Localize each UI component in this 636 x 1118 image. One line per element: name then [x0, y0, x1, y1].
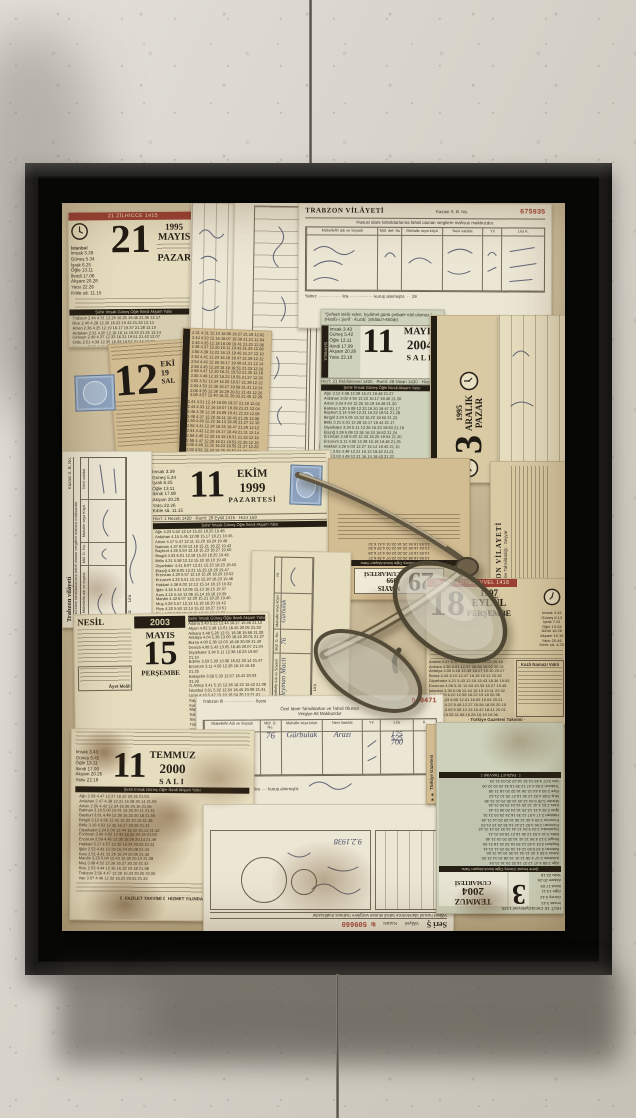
month: TEMMUZ	[439, 897, 507, 906]
weekday: PERŞEMBE	[467, 609, 511, 618]
revenue-type-handwritten: Arazi	[322, 731, 362, 774]
cell	[89, 500, 126, 542]
village-handwritten: Gürbulak	[280, 732, 322, 775]
prayer-times: İmsak 4.43 Güneş 6.13 İşrak 7.01 Öğle 13…	[540, 611, 564, 648]
kaza-no-label: Kazası S. B. No.	[436, 209, 468, 215]
frame-soft-shadow	[150, 985, 620, 1045]
vilayet-label: Vilâyeti	[405, 921, 419, 926]
wall-seam-upper	[309, 0, 312, 165]
stamp-oval	[82, 381, 108, 405]
col-header: Müf. D. No.	[81, 543, 88, 566]
year: 1999	[364, 576, 400, 584]
col-header: Lira	[380, 719, 413, 731]
col-header: Yıl	[482, 229, 501, 237]
kaza-label: Kazası	[383, 921, 396, 926]
year: 2000	[149, 761, 195, 777]
cell	[482, 236, 501, 291]
prayer-times: İmsak 3.39 Güneş 5.34 İşrak 6.25 Öğle 13…	[71, 251, 109, 296]
weekday: CUMARTESİ	[364, 570, 400, 576]
cell	[501, 236, 544, 291]
calendar-page-3-temmuz-2004-upside-down: Hicrî: 15 Cemâziyelevvel 1425 İmsak 3.43…	[436, 722, 564, 914]
col-header: Mahalle veya köyü	[280, 720, 322, 732]
hijri-line: Hicrî: 15 Cemâziyelevvel 1425	[439, 906, 561, 911]
serial-number: № 509660	[342, 919, 376, 927]
village-handwritten: Gürbulak	[281, 594, 313, 631]
handwriting-scribble	[230, 839, 370, 909]
picture-frame: 21 ZİLHİCCE 1415 İstanbul İmsak 3.39 Gün…	[25, 163, 612, 975]
clock-icon	[71, 222, 89, 240]
day-number: 12	[113, 360, 160, 400]
cell	[442, 236, 483, 291]
kaza-no-label: Kazası S. B. No.	[67, 457, 72, 489]
day-number: 18	[429, 588, 465, 648]
clock-icon	[459, 371, 479, 391]
city-times-table: Ağrı 2.58 4.47 12.37 16.32 20.16 21.54 A…	[439, 778, 561, 866]
cell	[306, 235, 378, 290]
day-number: 11	[112, 750, 146, 786]
year: 2004	[439, 885, 507, 897]
cell	[401, 236, 442, 291]
handwriting-scribble	[190, 204, 238, 335]
weekday: PAZARTESİ	[228, 495, 276, 504]
city-ilce-line: Trabzon İli ····················· İlçesi	[203, 698, 267, 706]
year: 1995	[153, 221, 196, 231]
notes-lines	[75, 298, 192, 309]
info-box-title: Kazâ Namazı Vakti	[518, 662, 562, 667]
col-header: Müf. D. No.	[259, 720, 280, 732]
day-number: 11	[189, 468, 226, 513]
year-box: 2003	[135, 616, 186, 629]
seri-label: Seri Ş	[427, 920, 447, 929]
weekday: SALI	[149, 777, 195, 786]
ayet-meali-label: Âyet Meâli	[80, 684, 131, 690]
receipt-title: Trabzon vilâyeti	[66, 577, 73, 622]
month: EKİM	[228, 467, 276, 480]
cell	[89, 458, 126, 500]
day-number: 11	[360, 326, 396, 378]
table-header: Şehir İmsak Güneş Öğle İkindi Akşam Yats…	[332, 560, 466, 566]
info-lines	[77, 629, 132, 664]
small-print	[430, 650, 563, 659]
year: 1999	[228, 479, 277, 496]
prayer-times: İmsak 3.43 Güneş 5.42 Öğle 13.11 İkindi …	[75, 749, 109, 785]
month: EYLÜL	[467, 598, 511, 609]
number-handwritten: 76	[281, 630, 312, 655]
receipt-table: Mükellefin adı ve Soyadı Müf. def. No Ma…	[305, 227, 545, 293]
cell	[282, 558, 314, 595]
signature-scribble	[305, 777, 355, 789]
col-header: Yıl	[361, 719, 380, 731]
small-print	[157, 243, 192, 251]
prayer-times: İmsak 3.43 Güneş 5.42 Öğle 13.11 İkindi …	[328, 325, 360, 377]
month: MAYIS	[364, 584, 400, 592]
collage-canvas: 21 ZİLHİCCE 1415 İstanbul İmsak 3.39 Gün…	[62, 203, 565, 931]
cell	[377, 236, 401, 291]
weekday: PAZAR	[474, 395, 484, 431]
sepia-prayer-table: 2.41 4.31 12.14 16.05 19.37 21.19 12.02 …	[178, 327, 273, 462]
receipt-subtitle: Hususi idare tahsildarlarınca tahsil olu…	[73, 457, 79, 622]
day-number: 15	[135, 640, 186, 670]
serial-number: 675935	[520, 208, 545, 216]
photograph: 21 ZİLHİCCE 1415 İstanbul İmsak 3.39 Gün…	[0, 0, 636, 1118]
col-header: Nevi Varidat	[322, 720, 362, 732]
weekday: CUMARTESİ	[439, 879, 507, 885]
serial-number: 910471	[411, 697, 436, 705]
numeric-table: 2.41 4.31 12.14 16.05 19.37 21.19 12.02 …	[188, 329, 271, 403]
info-box-text	[518, 667, 562, 705]
receipt-trabzon-left-rotated: Trabzon vilâyeti Kazası S. B. No. Hususi…	[62, 451, 152, 628]
receipt-509660-upside-down: Seri Ş Vilâyeti Kazası № 509660 Vilâyet …	[203, 804, 454, 931]
stamp-oval	[296, 472, 317, 498]
small-print	[76, 731, 250, 749]
calendar-page-21-mayis-1995: 21 ZİLHİCCE 1415 İstanbul İmsak 3.39 Gün…	[67, 210, 199, 347]
cell	[362, 731, 381, 774]
line2: Vergiye Ait Makbuzdur	[197, 711, 443, 718]
receipt-title: TRABZON VİLÂYETİ	[305, 206, 384, 214]
month: TEMMUZ	[150, 750, 196, 761]
revenue-stamp	[74, 374, 115, 411]
day-number: 3	[453, 435, 485, 454]
small-print	[338, 513, 460, 539]
prayer-times: İmsak 3.39 Güneş 5.34 İşrak 6.25 Öğle 13…	[152, 469, 187, 514]
year: 1995	[455, 395, 464, 431]
day-number: 3	[509, 872, 529, 906]
amount-line: Yalnız ················ lira ···········…	[299, 293, 551, 300]
strip-text: ✶✶ Türkiye Gazetesi	[427, 725, 436, 803]
receipt-subtitle: Hususi idare tahsildarlarına tahsil olun…	[305, 217, 545, 226]
postage-stamp	[289, 464, 322, 505]
receipt-subtitle: Vilâyet hususî idarelerince tahsil oluna…	[210, 912, 447, 919]
wall-seam-lower	[336, 974, 339, 1118]
lira-label: Lira	[312, 684, 318, 691]
kurus-line: lira ···· kuruş alınmıştır.	[254, 786, 299, 792]
number-handwritten: 76	[260, 732, 281, 775]
glasses-bridge	[394, 650, 399, 671]
cell	[89, 543, 126, 566]
frame-cavity: 21 ZİLHİCCE 1415 İstanbul İmsak 3.39 Gün…	[38, 176, 599, 962]
weekday: PERŞEMBE	[135, 669, 186, 678]
amounts-handwritten: 175 525 700	[380, 731, 413, 774]
clock-icon	[543, 588, 561, 606]
month: ARALIK	[464, 395, 474, 431]
brand-logo: NESİL	[77, 617, 132, 628]
month: MAYIS	[153, 231, 196, 242]
col-header: Mahalle veya Köyü	[81, 500, 88, 542]
year: 1997	[467, 588, 511, 598]
col-header: Mükellefin adı ve soyadı	[81, 566, 88, 621]
col-header: Nevi varidat	[81, 458, 88, 500]
receipt-table: Mükellefin adı ve soyadı Müf. D. No. Mah…	[80, 457, 126, 622]
note-text	[80, 668, 131, 685]
lira-label: Lira	[127, 595, 137, 602]
cell	[89, 566, 126, 621]
col-header: Müf. def. No	[378, 228, 402, 236]
prayer-times: İmsak 3.43 Güneş 5.42 Öğle 13.11 İkindi …	[531, 872, 561, 906]
weekday-abbrev: SAL	[161, 376, 176, 385]
times-rows: 13.06 16.58 20.22 22.07 4.35 6.27 13.05 …	[332, 541, 466, 560]
calendar-page-18-eylul-1997: 16 CEMAZİYELEVVEL 1418 18 1997 EYLÜL PER…	[426, 578, 565, 725]
handwriting-scribble	[127, 517, 137, 587]
receipt-table: Mükellefin Adı ve Soyadı Müf. D. No. Mah…	[271, 557, 314, 710]
day-number: 21	[111, 222, 152, 296]
publisher-footer: ☾ FAZİLET TAKVİMİ ☾	[439, 772, 561, 778]
